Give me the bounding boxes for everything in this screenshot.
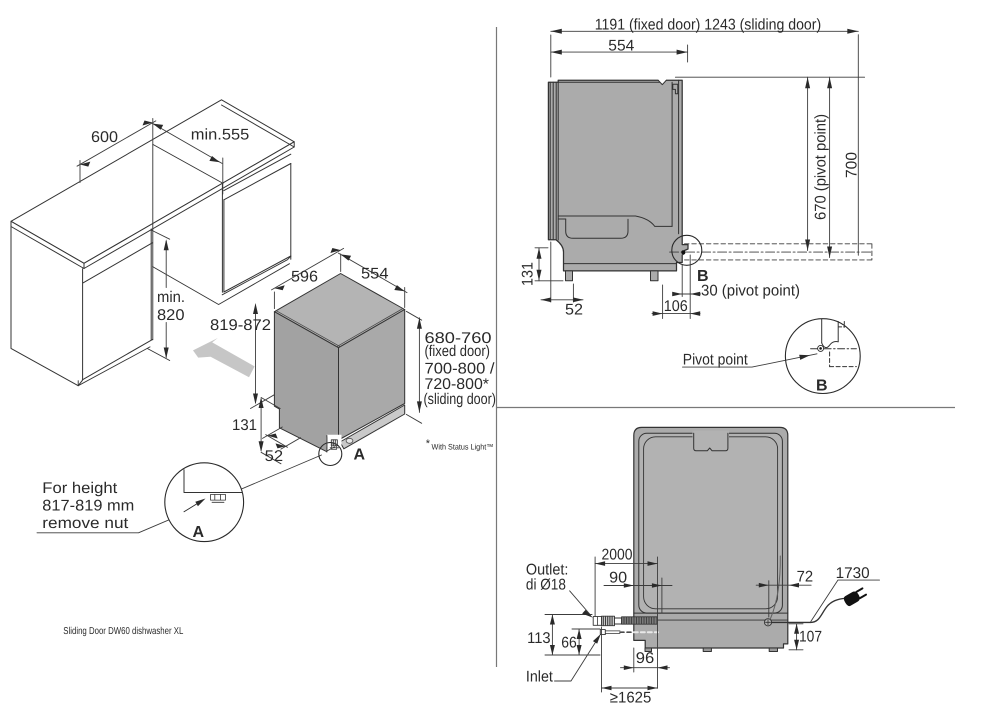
- svg-text:1191 (fixed door) 1243 (slidin: 1191 (fixed door) 1243 (sliding door): [595, 16, 822, 33]
- svg-text:52: 52: [265, 448, 284, 465]
- svg-text:(fixed door): (fixed door): [425, 343, 491, 360]
- svg-text:670 (pivot point): 670 (pivot point): [813, 114, 830, 220]
- svg-text:Pivot point: Pivot point: [683, 352, 749, 369]
- svg-text:131: 131: [232, 417, 257, 434]
- svg-text:596: 596: [291, 269, 318, 286]
- svg-text:min.555: min.555: [191, 127, 250, 144]
- svg-text:107: 107: [799, 629, 822, 646]
- svg-text:700: 700: [844, 152, 861, 178]
- svg-text:remove nut: remove nut: [42, 515, 129, 532]
- svg-text:96: 96: [636, 650, 655, 667]
- svg-text:Inlet: Inlet: [526, 669, 554, 686]
- svg-text:52: 52: [565, 302, 583, 319]
- svg-text:1730: 1730: [836, 565, 870, 582]
- svg-text:106: 106: [664, 298, 688, 315]
- svg-text:di Ø18: di Ø18: [526, 577, 566, 594]
- svg-text:A: A: [354, 447, 366, 464]
- svg-text:113: 113: [527, 630, 551, 647]
- svg-text:With Status Light™: With Status Light™: [432, 443, 494, 452]
- svg-text:*: *: [426, 438, 431, 450]
- svg-text:554: 554: [361, 266, 389, 283]
- svg-text:≥1625: ≥1625: [610, 690, 652, 707]
- svg-text:817-819 mm: 817-819 mm: [42, 497, 134, 514]
- svg-text:A: A: [193, 524, 205, 541]
- svg-text:90: 90: [609, 570, 627, 587]
- svg-text:72: 72: [797, 569, 814, 586]
- svg-text:819-872: 819-872: [210, 317, 271, 334]
- svg-text:min.: min.: [157, 289, 185, 306]
- svg-text:Sliding Door DW60 dishwasher X: Sliding Door DW60 dishwasher XL: [63, 626, 183, 637]
- svg-text:66: 66: [561, 635, 577, 652]
- svg-text:For height: For height: [42, 480, 118, 497]
- svg-text:554: 554: [608, 37, 634, 54]
- svg-text:2000: 2000: [602, 547, 633, 564]
- svg-text:131: 131: [520, 262, 537, 286]
- svg-text:B: B: [816, 378, 828, 395]
- svg-text:(sliding door): (sliding door): [424, 391, 497, 408]
- svg-text:600: 600: [91, 129, 118, 146]
- svg-text:820: 820: [157, 307, 185, 324]
- svg-text:30 (pivot point): 30 (pivot point): [701, 283, 800, 300]
